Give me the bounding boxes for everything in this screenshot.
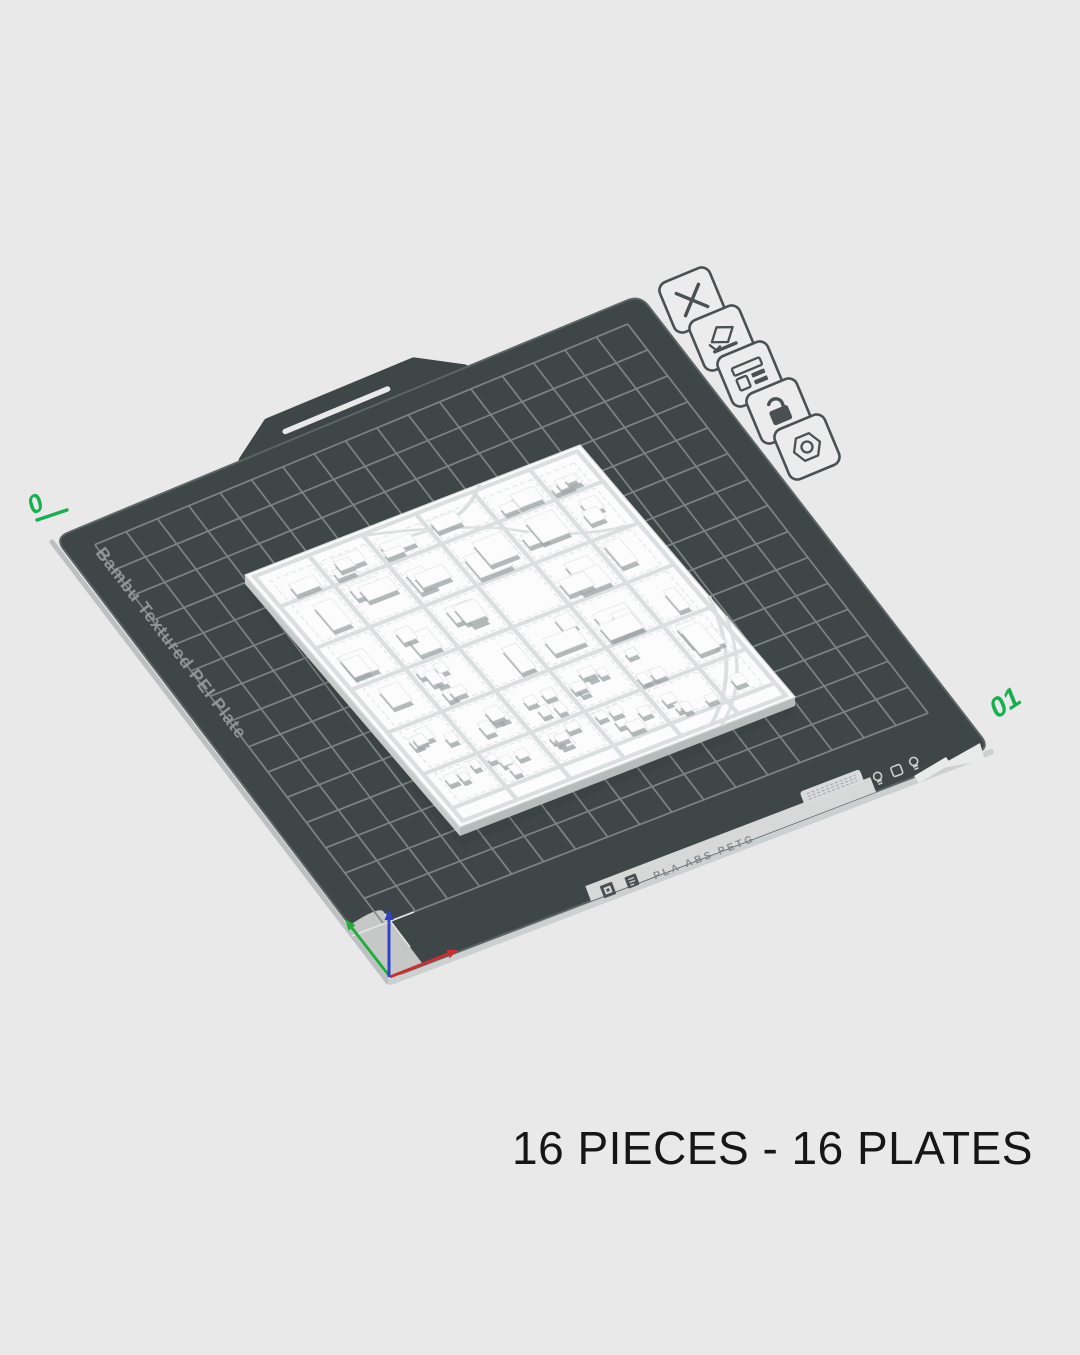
plate-number-label: 01 <box>983 681 1026 724</box>
slicer-stage: Bambu Textured PEI Plate PLA ABS PETG <box>0 0 1080 1350</box>
adjacent-plate-number-label: 0 <box>22 487 49 521</box>
caption-text: 16 PIECES - 16 PLATES <box>512 1121 1033 1175</box>
